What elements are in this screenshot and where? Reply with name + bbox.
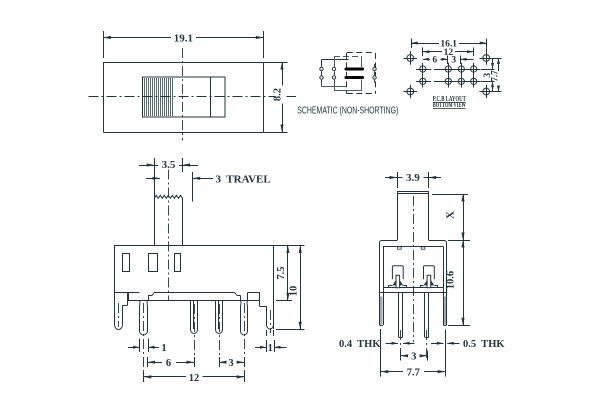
svg-text:0.4 THK: 0.4 THK xyxy=(339,339,381,350)
svg-text:1: 1 xyxy=(161,343,166,354)
svg-text:7.5: 7.5 xyxy=(276,266,287,279)
svg-text:6: 6 xyxy=(166,358,171,369)
svg-text:3: 3 xyxy=(451,56,456,66)
svg-text:8.2: 8.2 xyxy=(272,88,283,101)
svg-text:1: 1 xyxy=(268,343,273,354)
svg-text:10.6: 10.6 xyxy=(446,271,457,289)
svg-text:SCHEMATIC (NON-SHORTING): SCHEMATIC (NON-SHORTING) xyxy=(297,106,398,117)
svg-text:X: X xyxy=(445,211,457,219)
svg-text:7.7: 7.7 xyxy=(489,70,499,82)
svg-text:0.5 THK: 0.5 THK xyxy=(463,339,505,350)
svg-text:BOTTOM VIEW: BOTTOM VIEW xyxy=(433,101,466,109)
svg-text:3 TRAVEL: 3 TRAVEL xyxy=(216,173,271,185)
svg-text:12: 12 xyxy=(189,373,200,384)
svg-text:6: 6 xyxy=(432,56,437,66)
svg-text:3.5: 3.5 xyxy=(162,159,176,171)
svg-text:3.9: 3.9 xyxy=(406,172,420,184)
svg-text:3: 3 xyxy=(228,358,233,369)
svg-text:10: 10 xyxy=(288,286,299,297)
svg-text:7.7: 7.7 xyxy=(407,368,420,379)
svg-text:3: 3 xyxy=(411,352,416,363)
svg-text:19.1: 19.1 xyxy=(174,33,193,45)
